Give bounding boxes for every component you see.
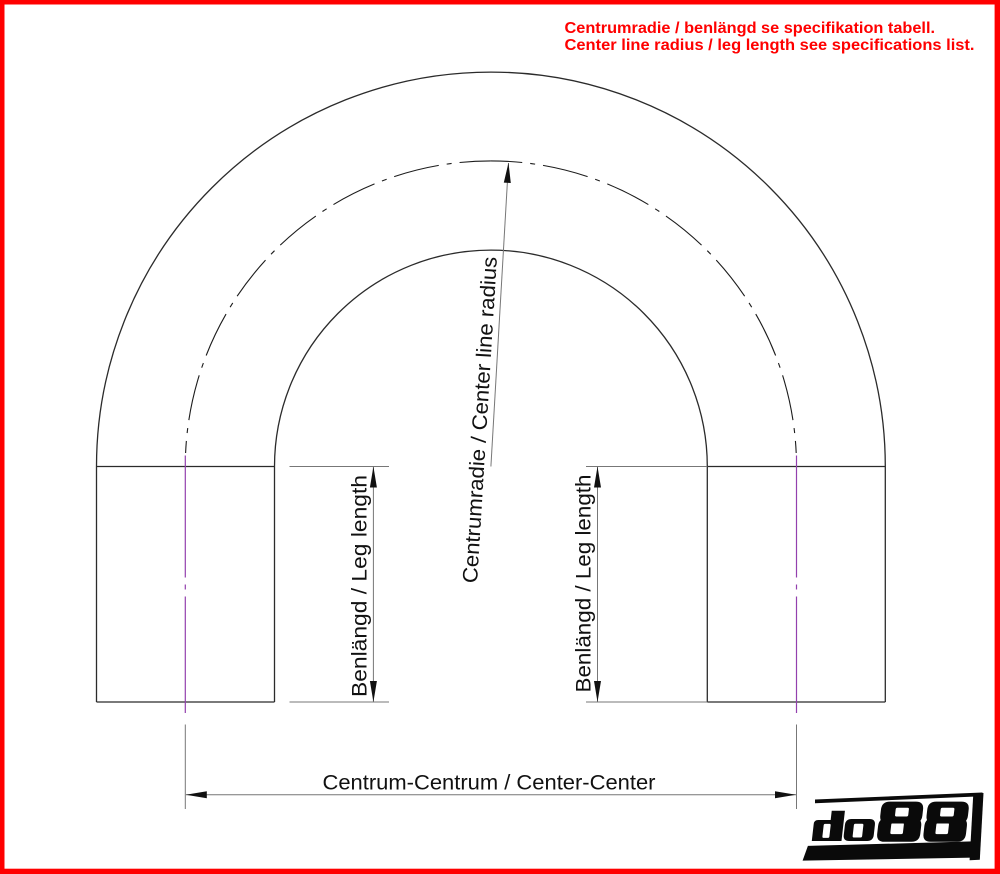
svg-text:Benlängd / Leg length: Benlängd / Leg length [573,475,596,693]
svg-text:Center line radius / leg lengt: Center line radius / leg length see spec… [565,37,975,54]
svg-text:Benlängd / Leg length: Benlängd / Leg length [349,475,372,697]
svg-text:Centrumradie / benlängd se spe: Centrumradie / benlängd se specifikation… [565,20,936,37]
svg-text:Centrum-Centrum / Center-Cente: Centrum-Centrum / Center-Center [323,772,656,795]
